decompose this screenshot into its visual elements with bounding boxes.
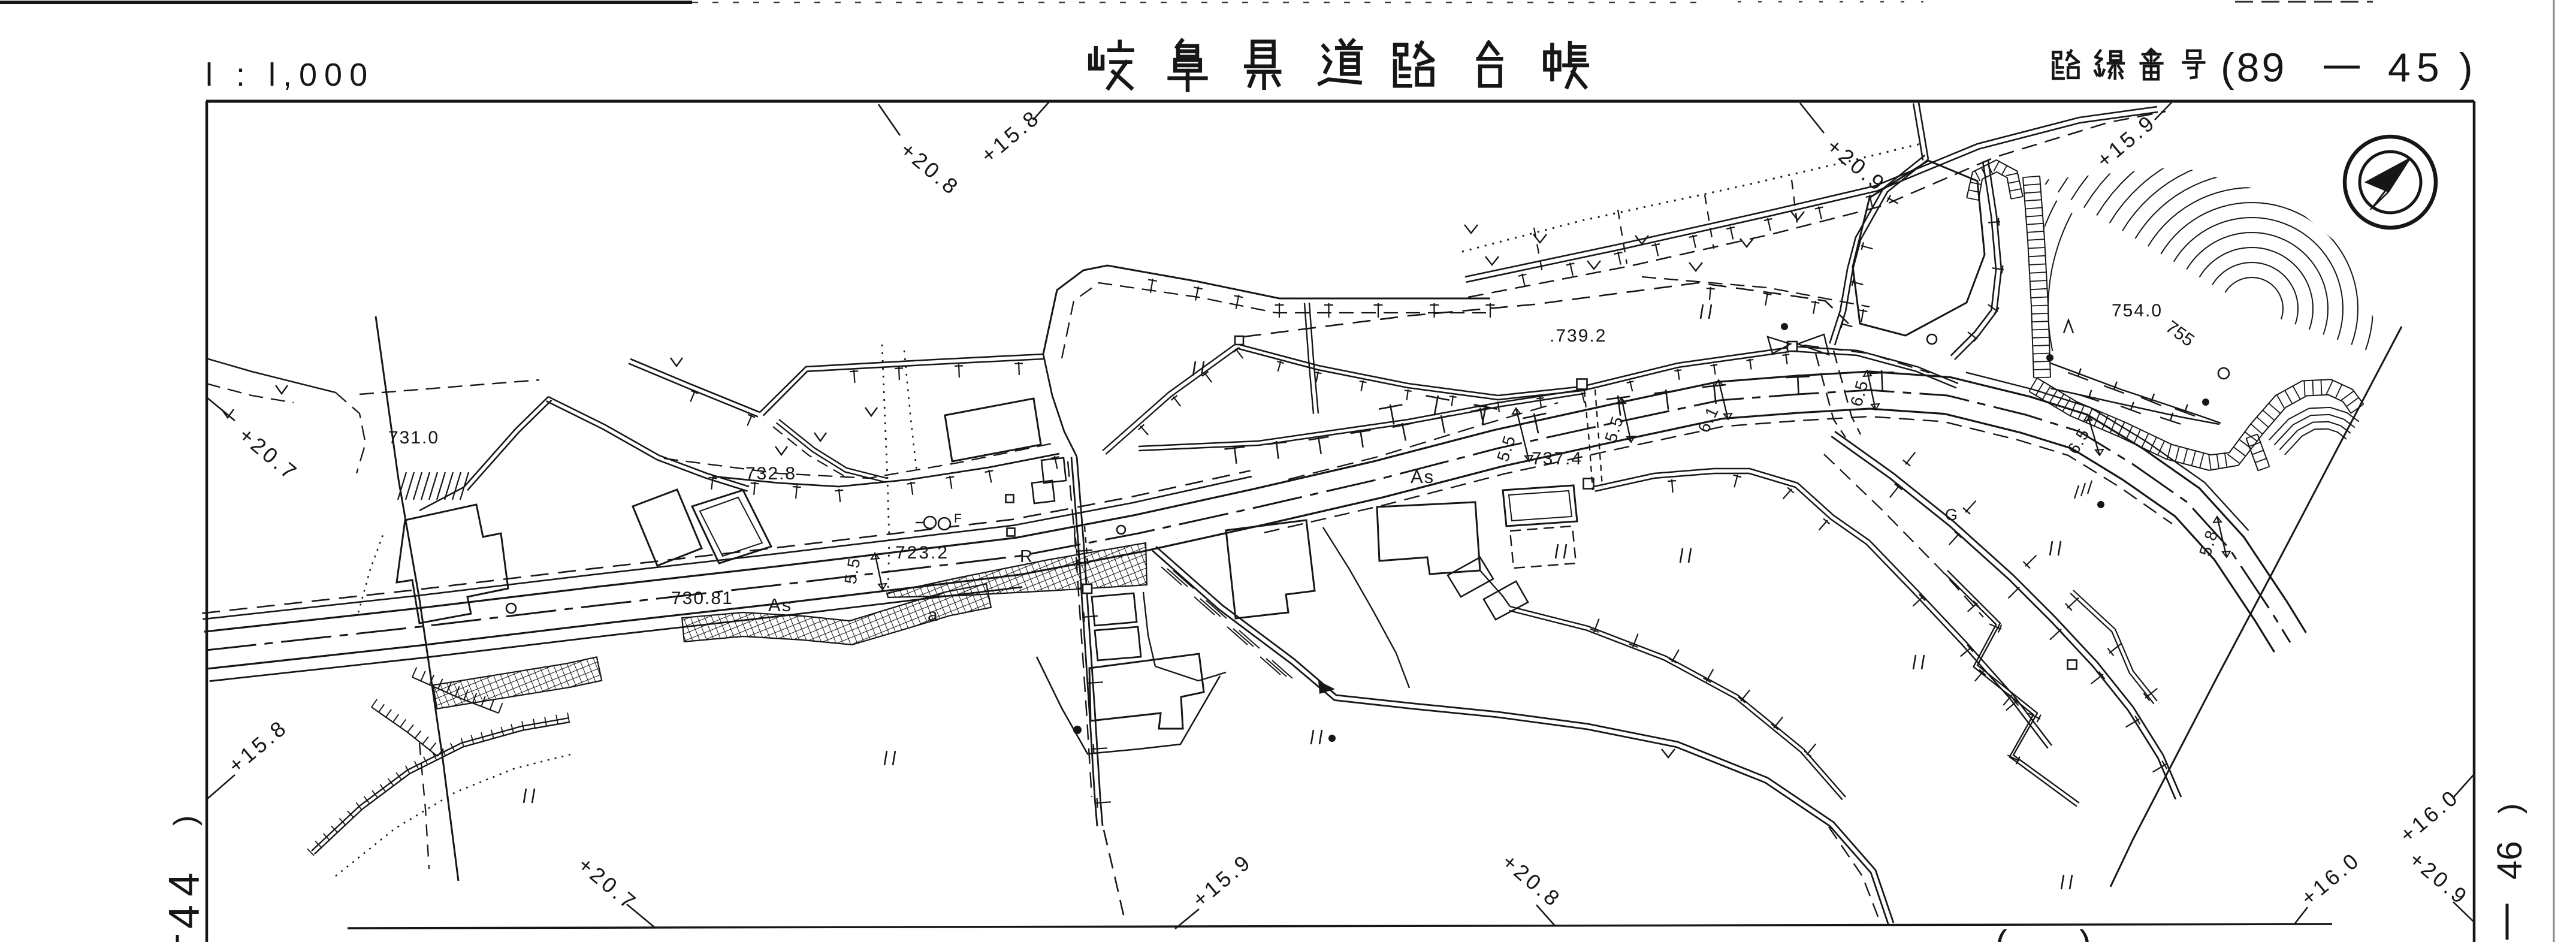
svg-text:): ): [2493, 804, 2527, 814]
svg-text:): ): [168, 816, 203, 826]
svg-text:G: G: [1945, 506, 1959, 524]
svg-text:): ): [2079, 923, 2091, 942]
svg-text:731.0: 731.0: [388, 428, 439, 448]
svg-text:737.4: 737.4: [1532, 449, 1583, 469]
svg-text:.739.2: .739.2: [1550, 326, 1606, 346]
svg-text:732.8: 732.8: [745, 464, 796, 484]
svg-text:R: R: [1020, 547, 1034, 566]
svg-text:F: F: [954, 512, 963, 526]
svg-text:As: As: [1411, 466, 1435, 487]
svg-text:): ): [2459, 45, 2473, 90]
svg-text:730.81: 730.81: [671, 588, 733, 608]
svg-text:(: (: [1995, 923, 2007, 942]
svg-text:(89: (89: [2221, 45, 2287, 90]
svg-text:As: As: [768, 594, 792, 615]
svg-text:a: a: [928, 605, 939, 625]
svg-text:754.0: 754.0: [2112, 301, 2163, 321]
svg-text:723.2: 723.2: [895, 543, 949, 563]
svg-text:45: 45: [2388, 45, 2445, 90]
svg-text:44: 44: [161, 864, 209, 929]
svg-text:46: 46: [2490, 841, 2529, 880]
svg-text:l : l,000: l : l,000: [206, 57, 375, 93]
